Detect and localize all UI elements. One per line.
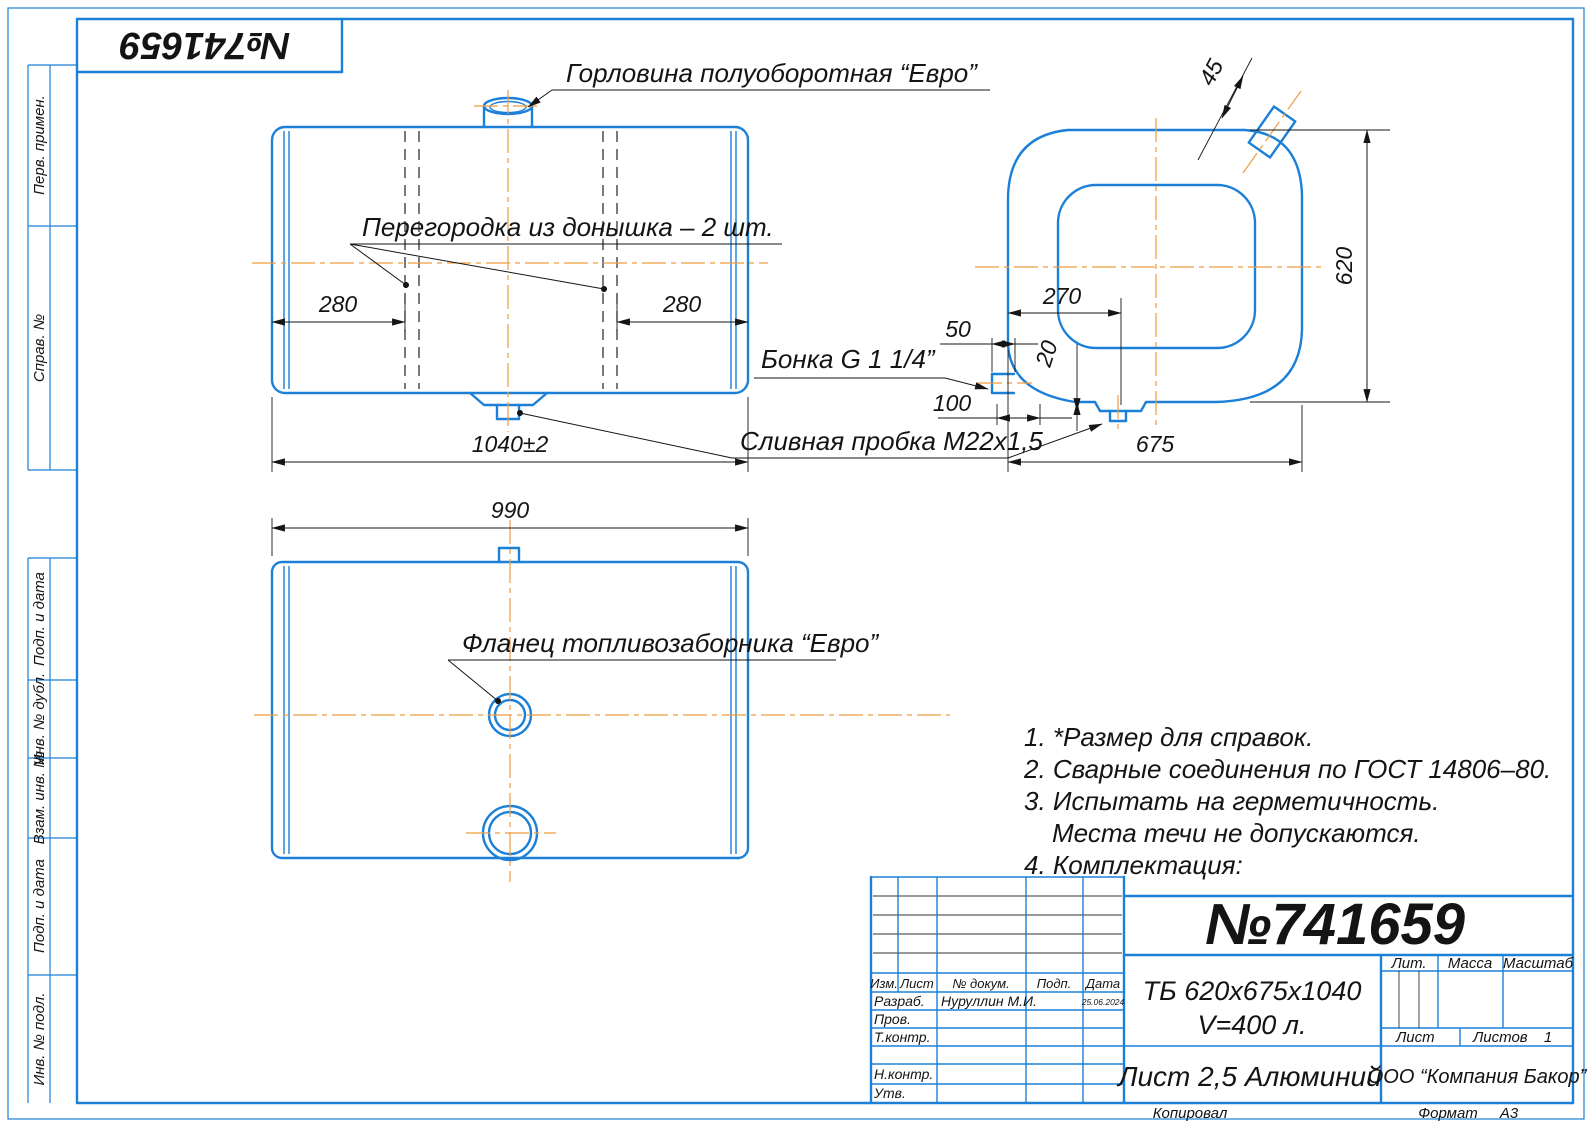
footer-copied: Копировал <box>1153 1105 1228 1122</box>
callout-fuel-flange: Фланец топливозаборника “Евро” <box>462 628 880 658</box>
margin-label-podp-data-bottom: Подп. и дата <box>31 859 48 953</box>
dim-baffle-left: 280 <box>318 291 358 317</box>
margin-label-sprav-no: Справ. № <box>31 314 48 382</box>
tb-row-razrab: Разраб. <box>874 993 925 1009</box>
top-stamp-number: №741659 <box>120 24 290 66</box>
callout-drain-plug: Сливная пробка М22х1,5 <box>740 426 1043 456</box>
tb-col-podp: Подп. <box>1037 976 1072 991</box>
margin-label-inv-podl: Инв. № подл. <box>31 992 48 1085</box>
tb-massa-label: Масса <box>1448 955 1492 972</box>
tb-row-utv: Утв. <box>873 1085 906 1101</box>
tb-col-data: Дата <box>1084 976 1120 991</box>
footer-format-value: А3 <box>1499 1105 1519 1122</box>
front-view-centerlines <box>252 90 768 432</box>
margin-label-inv-dubl: Инв. № дубл. <box>31 673 48 765</box>
margin-label-vzam-inv: Взам. инв. № <box>31 752 48 845</box>
tb-list-label: Лист <box>1395 1029 1435 1046</box>
margin-label-podp-data-top: Подп. и дата <box>31 572 48 666</box>
tb-col-list: Лист <box>899 976 934 991</box>
callout-baffle: Перегородка из донышка – 2 шт. <box>362 212 774 242</box>
callout-filler-neck: Горловина полуоборотная “Евро” <box>566 58 978 88</box>
dim-bottom-width: 990 <box>491 497 530 523</box>
tb-row-nkontr: Н.контр. <box>874 1066 933 1082</box>
dim-drain-depth: 20 <box>1030 337 1063 371</box>
tb-listov-label: Листов <box>1472 1029 1528 1046</box>
dim-tank-height: 620 <box>1331 247 1357 286</box>
tb-razrab-date: 25.06.2024 <box>1081 997 1125 1007</box>
front-view-outline <box>272 98 748 419</box>
tb-masshtab-label: Масштаб <box>1503 955 1574 972</box>
tb-col-dokum: № докум. <box>952 976 1009 991</box>
title-designation: ТБ 620х675х1040 <box>1143 976 1362 1006</box>
side-view-outline <box>992 107 1302 421</box>
tb-col-izm: Изм. <box>870 976 898 991</box>
front-view-baffle-hidden-lines <box>405 131 617 389</box>
note-2: 2. Сварные соединения по ГОСТ 14806–80. <box>1023 754 1551 784</box>
title-doc-number: №741659 <box>1205 892 1465 957</box>
callout-bonka-leader <box>754 378 988 389</box>
side-view-dimensions <box>938 58 1390 472</box>
note-3b: Места течи не допускаются. <box>1052 818 1421 848</box>
title-volume: V=400 л. <box>1197 1010 1306 1040</box>
dim-side-to-drain: 270 <box>1042 283 1082 309</box>
note-4: 4. Комплектация: <box>1024 850 1243 880</box>
callout-baffle-leader <box>350 244 782 289</box>
drawing-sheet: №741659 Перв. примен. Справ. № Подп. и д… <box>0 0 1592 1127</box>
footer-format-label: Формат <box>1418 1105 1478 1122</box>
tb-row-tkontr: Т.контр. <box>874 1029 930 1045</box>
note-1: 1. *Размер для справок. <box>1024 722 1313 752</box>
margin-label-perv-primen: Перв. примен. <box>31 95 48 195</box>
tb-lit-label: Лит. <box>1390 955 1426 972</box>
tb-listov-value: 1 <box>1544 1029 1552 1046</box>
dim-neck-angle: 45 <box>1193 55 1228 90</box>
tb-row-prov: Пров. <box>874 1011 911 1027</box>
bottom-view-centerlines <box>254 520 950 882</box>
dim-baffle-right: 280 <box>662 291 702 317</box>
side-view-centerlines <box>975 91 1322 430</box>
callout-bonka: Бонка G 1 1/4” <box>761 344 936 374</box>
dim-tank-depth: 675 <box>1136 431 1175 457</box>
drawing-canvas: №741659 Перв. примен. Справ. № Подп. и д… <box>0 0 1592 1127</box>
callout-filler-neck-leader <box>528 90 990 107</box>
tb-razrab-name: Нуруллин М.И. <box>941 993 1037 1009</box>
dim-tank-length: 1040±2 <box>472 431 549 457</box>
dim-bonka-offset: 50 <box>945 316 971 342</box>
note-3: 3. Испытать на герметичность. <box>1024 786 1439 816</box>
dim-bonka-height: 100 <box>933 390 972 416</box>
title-company: ООО “Компания Бакор” <box>1368 1066 1588 1088</box>
title-material: Лист 2,5 Алюминий <box>1116 1061 1382 1092</box>
